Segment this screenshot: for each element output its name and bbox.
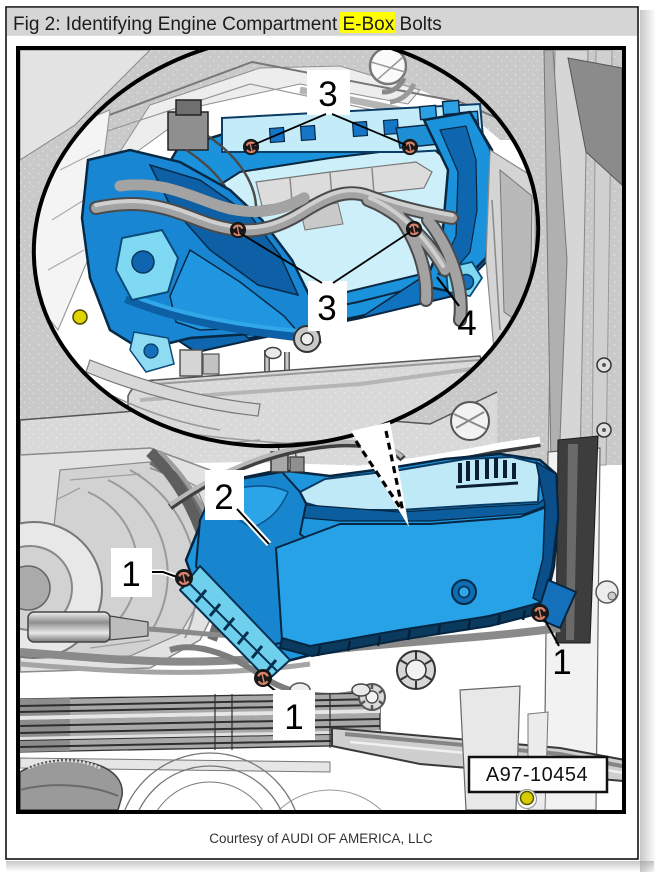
svg-text:Courtesy of AUDI OF AMERICA, L: Courtesy of AUDI OF AMERICA, LLC: [209, 831, 433, 846]
svg-text:3: 3: [318, 75, 337, 114]
svg-text:4: 4: [457, 304, 476, 343]
svg-text:1: 1: [284, 698, 303, 737]
svg-text:Fig 2: Identifying Engine Comp: Fig 2: Identifying Engine Compartment E-…: [13, 14, 442, 35]
svg-text:1: 1: [121, 555, 140, 594]
svg-text:3: 3: [317, 289, 336, 328]
svg-text:2: 2: [214, 478, 233, 517]
svg-text:1: 1: [552, 643, 571, 682]
svg-text:A97-10454: A97-10454: [486, 764, 588, 786]
